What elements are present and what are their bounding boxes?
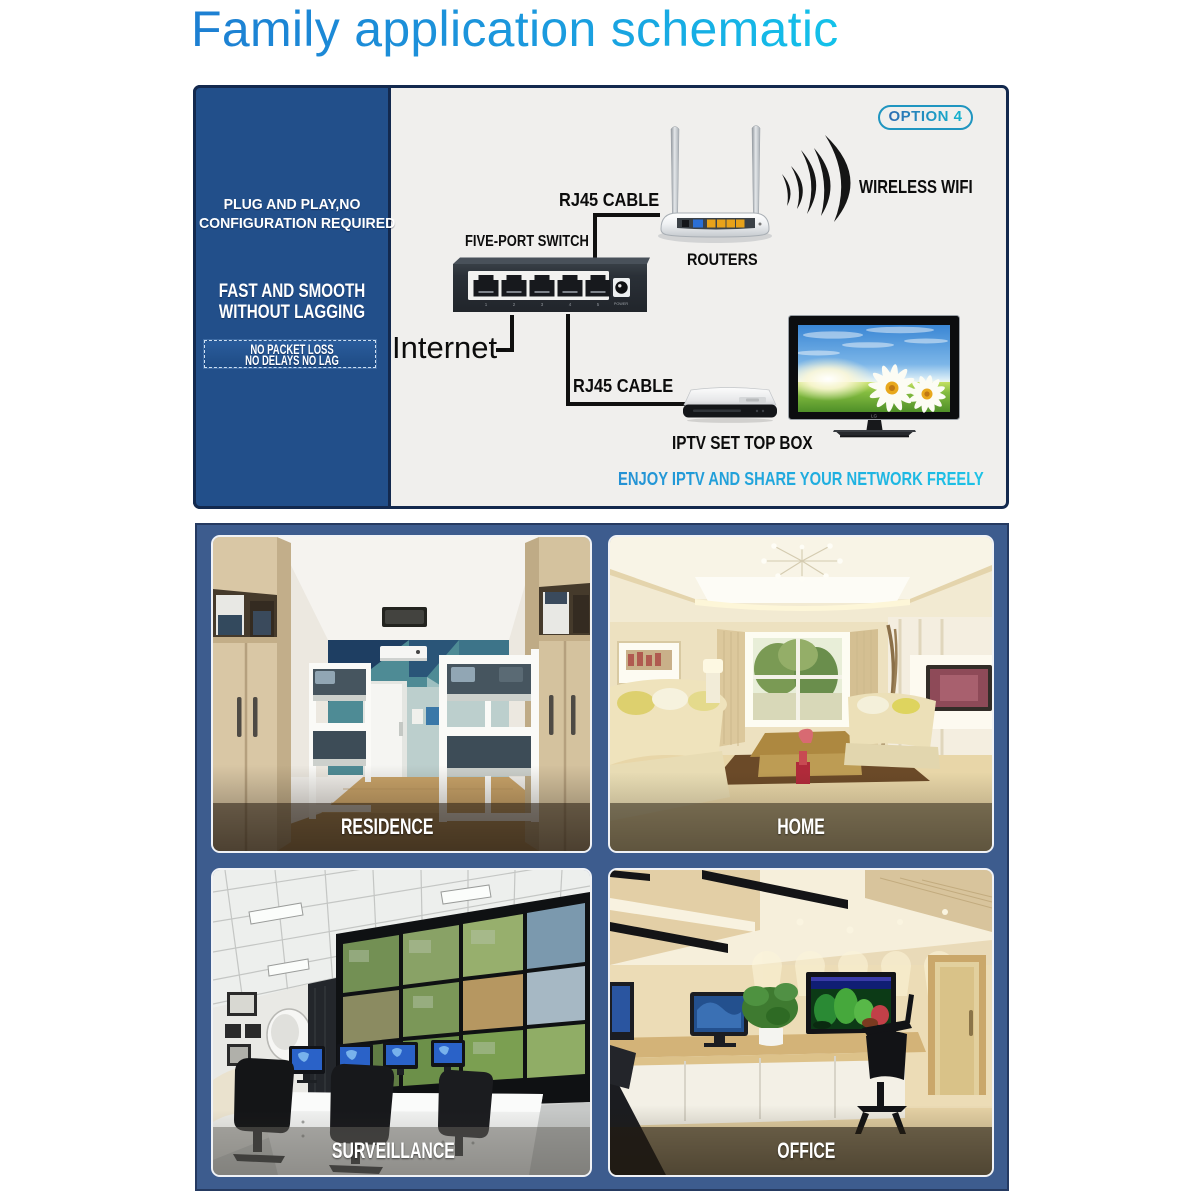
- svg-text:LG: LG: [871, 414, 878, 419]
- svg-text:POWER: POWER: [614, 302, 629, 306]
